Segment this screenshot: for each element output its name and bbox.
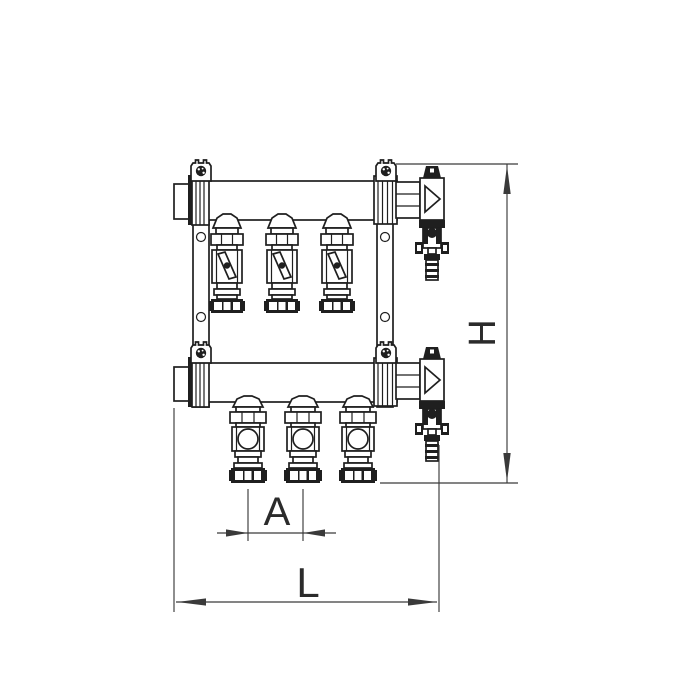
arrow-right-icon: [226, 529, 248, 536]
drain-valve-top: [396, 166, 449, 280]
loop-valve-bottom-2: [284, 396, 322, 483]
collar-bottom-right: [374, 358, 397, 406]
loop-valve-top-1: [209, 214, 245, 313]
end-cap-bottom: [174, 367, 190, 401]
dim-label-l: L: [296, 559, 319, 606]
dim-label-h: H: [462, 319, 504, 346]
manifold-top-bar: [190, 181, 397, 220]
bracket-clip-top-left: [191, 160, 211, 181]
bracket-clip-top-right: [376, 160, 396, 181]
arrow-left-icon: [303, 529, 325, 536]
loop-valve-bottom-1: [229, 396, 267, 483]
collar-top-left: [188, 175, 209, 225]
dim-label-a: A: [264, 490, 291, 534]
loop-valve-top-2: [264, 214, 300, 313]
drain-valve-bottom: [396, 347, 449, 461]
collar-bottom-left: [188, 357, 209, 407]
manifold-drawing: H A L: [0, 0, 700, 700]
bracket-clip-bottom-left: [191, 342, 211, 363]
arrow-up-icon: [503, 166, 510, 195]
drawing-canvas: H A L: [0, 0, 700, 700]
collar-top-right: [374, 176, 397, 224]
arrow-down-icon: [503, 453, 510, 482]
manifold-bottom-bar: [190, 363, 397, 402]
bracket-clip-bottom-right: [376, 342, 396, 363]
loop-valve-bottom-3: [339, 396, 377, 483]
arrow-left-icon: [177, 598, 206, 605]
end-cap-top: [174, 184, 190, 219]
loop-valve-top-3: [319, 214, 355, 313]
dimension-a: A: [217, 489, 336, 541]
arrow-right-icon: [408, 598, 437, 605]
